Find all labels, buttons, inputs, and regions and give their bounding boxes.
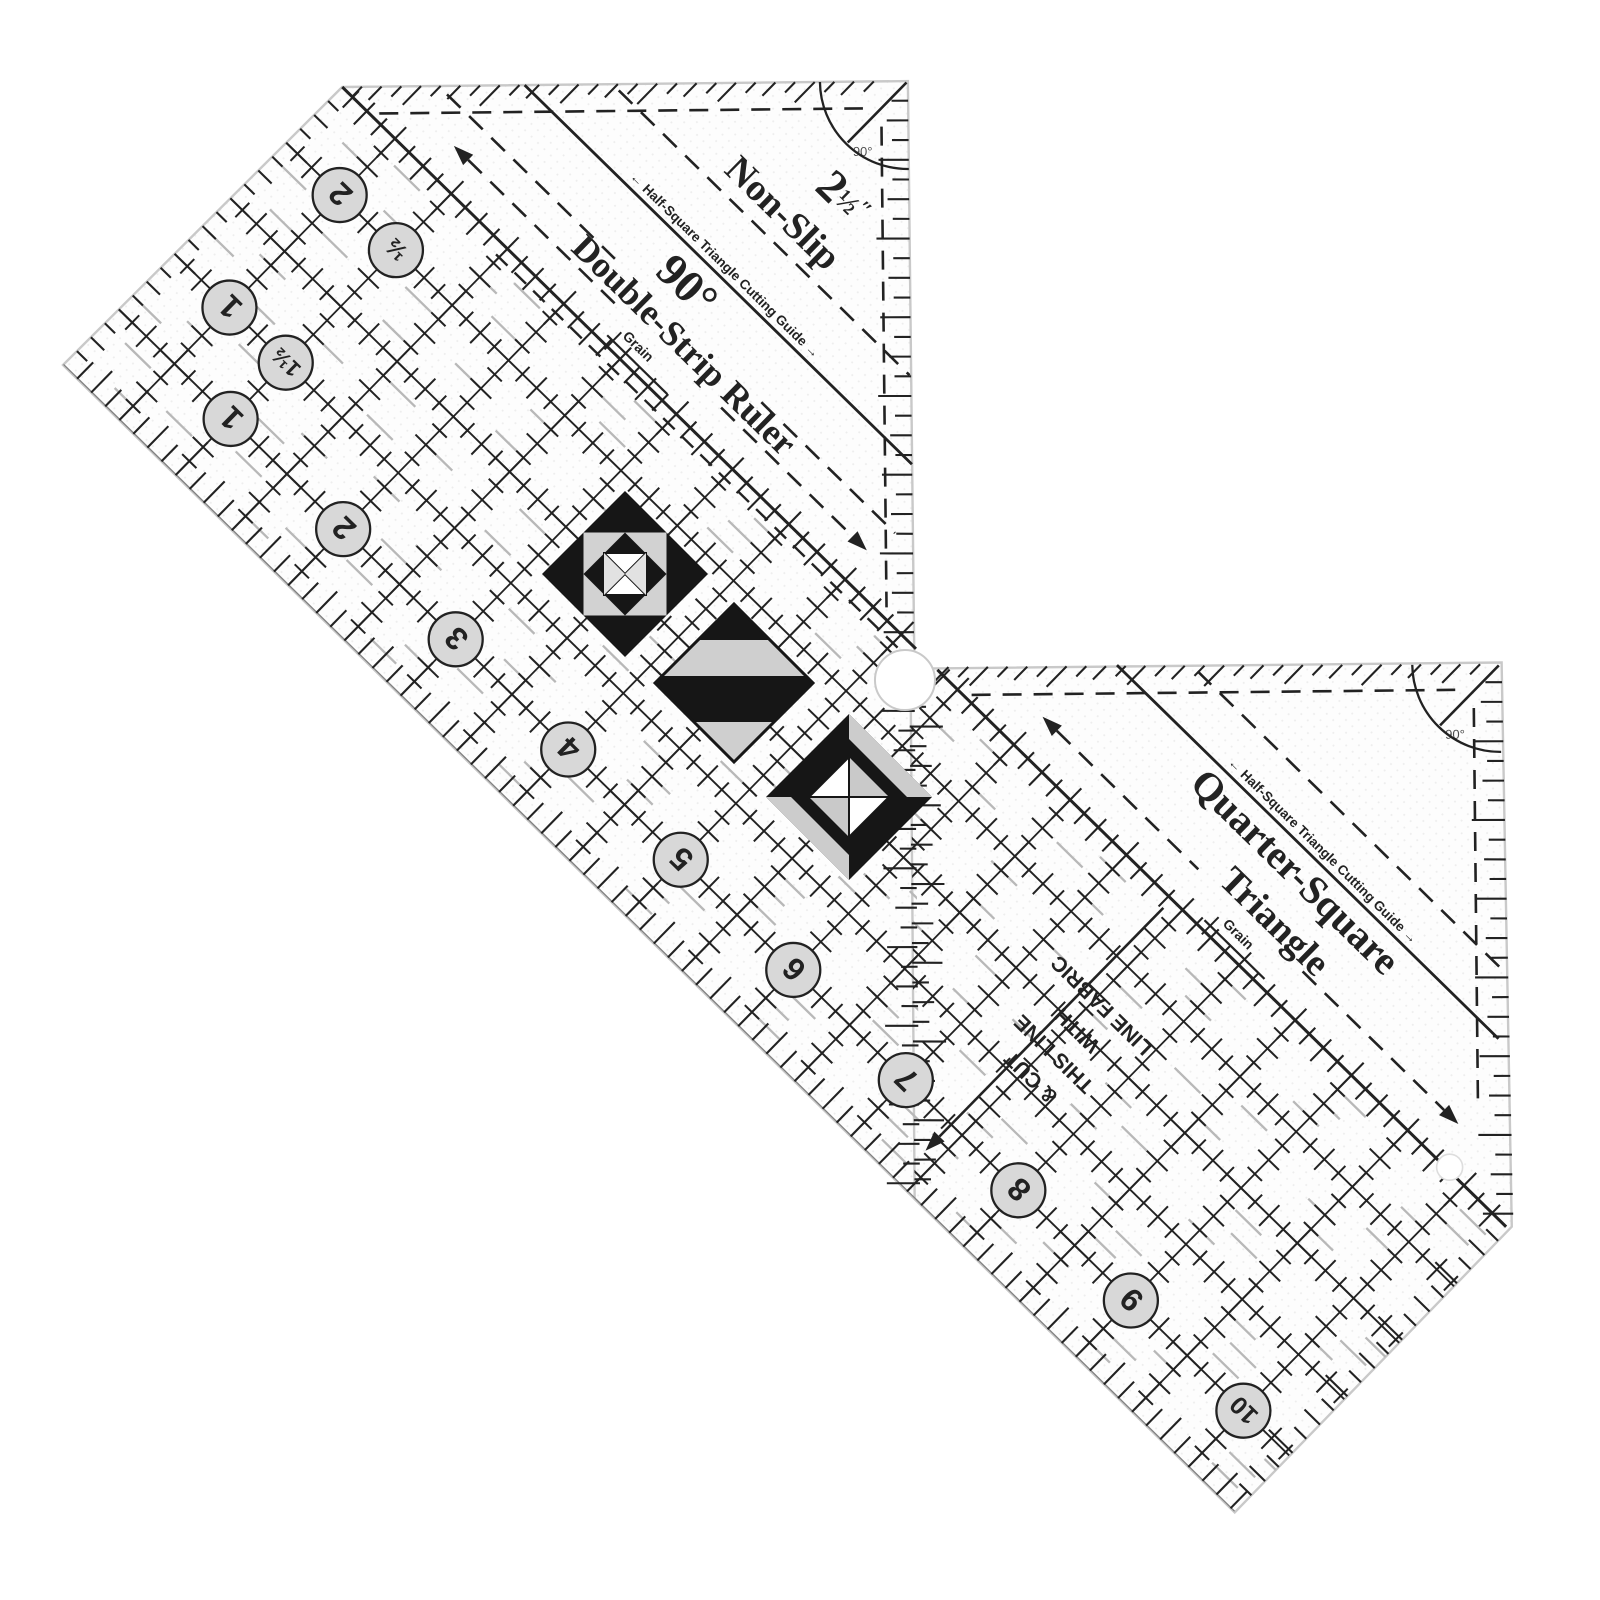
svg-text:90°: 90° — [853, 144, 873, 159]
svg-text:90°: 90° — [1445, 727, 1465, 742]
